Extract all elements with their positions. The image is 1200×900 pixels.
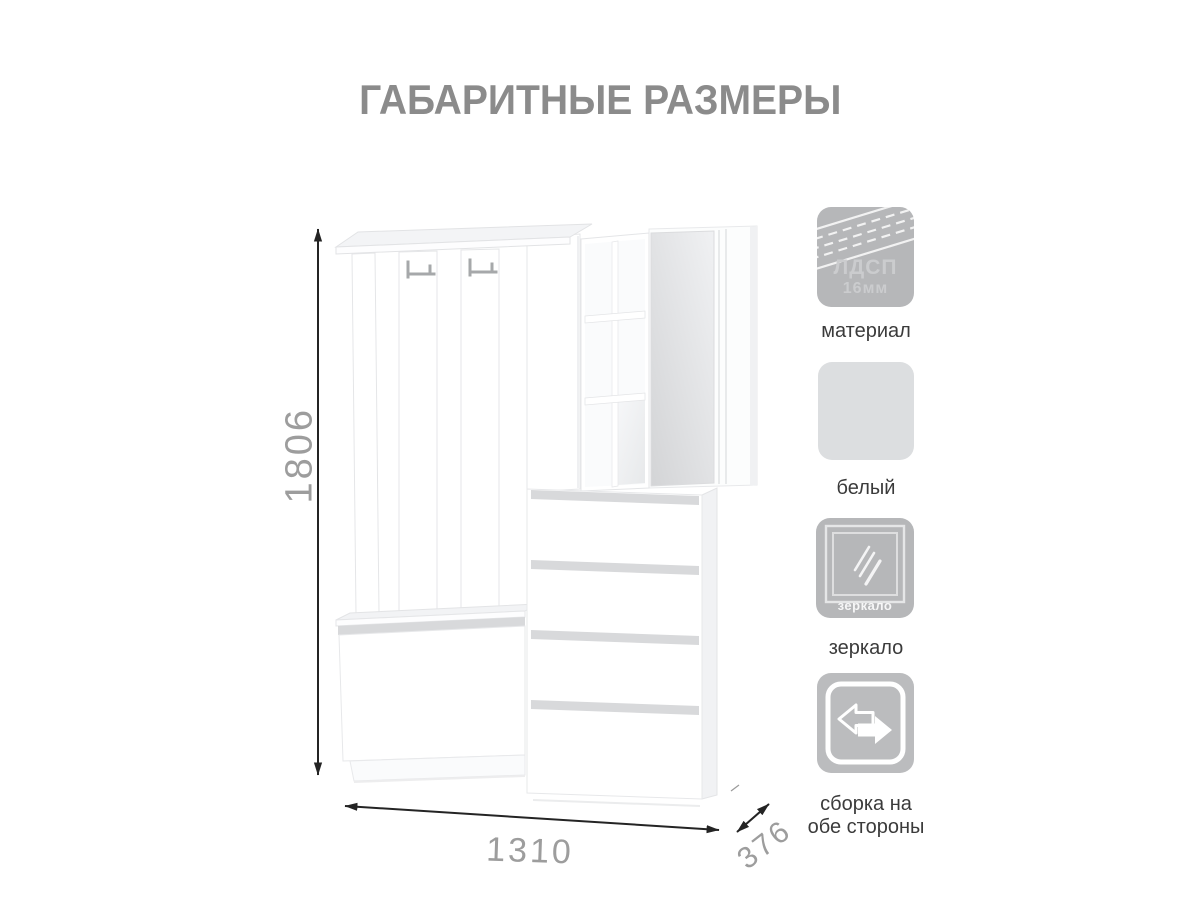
chipboard-icon-text: ЛДСП 16мм: [817, 257, 914, 297]
material-label: материал: [756, 320, 976, 343]
infographic-canvas: ГАБАРИТНЫЕ РАЗМЕРЫ: [0, 0, 1200, 900]
color-label: белый: [756, 477, 976, 500]
mirror-icon-badge: зеркало: [816, 598, 914, 613]
width-dimension-line: [345, 806, 719, 830]
mirror-panel-edge-shade: [750, 226, 757, 486]
right-arrow-solid: [858, 716, 892, 744]
mirror-glass: [651, 231, 714, 486]
shelf-divider: [612, 241, 618, 487]
floor-corner-mark: [731, 785, 739, 791]
shelf-cell-shadow: [618, 400, 645, 485]
chipboard-edge-icon: ЛДСП 16мм: [817, 207, 914, 307]
width-dimension-value: 1310: [469, 830, 590, 873]
coatrack-side-panel: [352, 253, 379, 614]
assembly-label: сборка на обе стороны: [756, 793, 976, 839]
bench-door: [339, 626, 525, 761]
mirror-icon: зеркало: [816, 518, 914, 618]
height-dimension-value: 1806: [279, 420, 322, 504]
furniture-illustration: [0, 0, 1200, 900]
coatrack-slat: [461, 249, 499, 613]
cabinet-side-wall: [527, 234, 580, 492]
white-color-swatch: [818, 362, 914, 460]
coatrack-slat: [399, 251, 437, 614]
mirror-label: зеркало: [756, 637, 976, 660]
two-way-assembly-icon: [817, 673, 914, 773]
chest-side-panel: [702, 488, 717, 799]
